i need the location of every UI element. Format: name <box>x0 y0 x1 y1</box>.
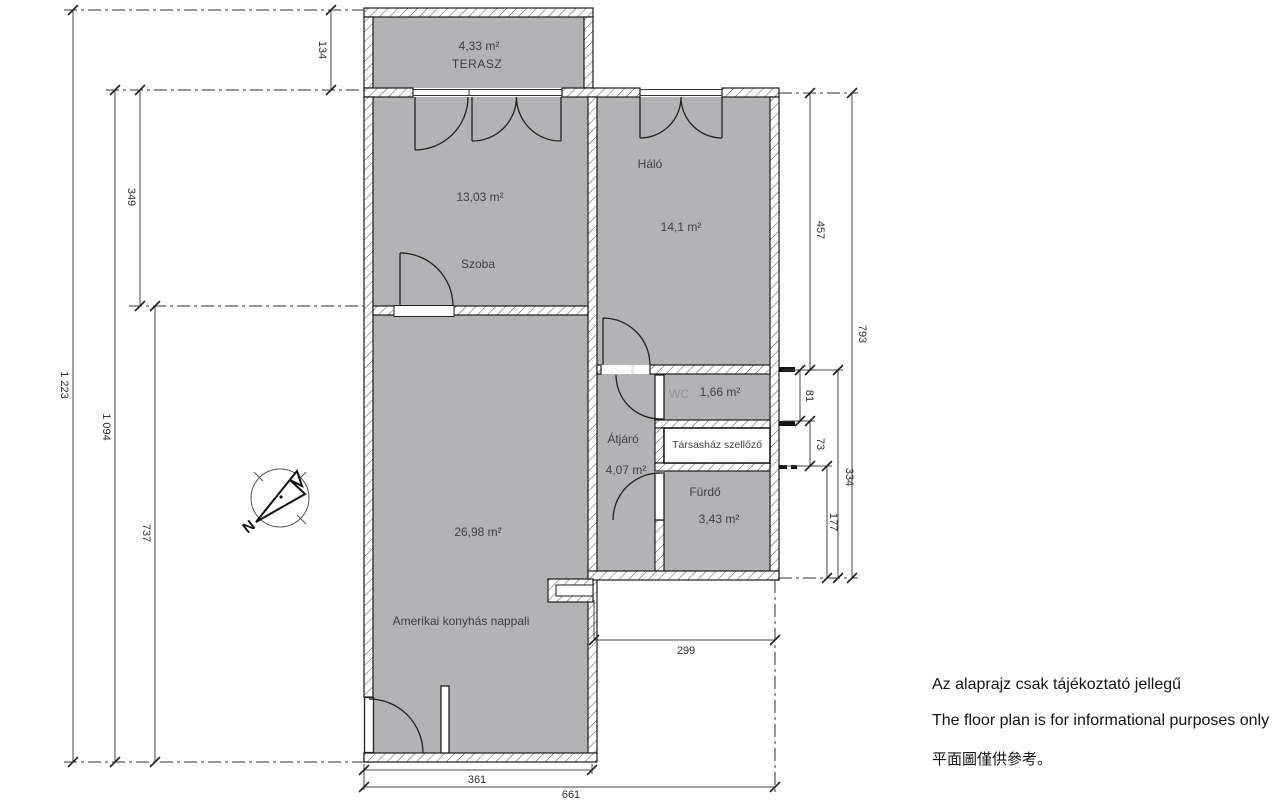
dim-right-halo: 457 <box>814 221 826 239</box>
szoba-area: 13,03 m² <box>456 190 503 204</box>
kitchen-partition-wall <box>441 686 449 753</box>
disclaimer-zh: 平面圖僅供參考。 <box>932 748 1052 769</box>
nappali-area: 26,98 m² <box>454 525 501 539</box>
wc-name: WC <box>669 387 689 401</box>
floor-plan-canvas: GDN <box>0 0 1280 800</box>
halo-name: Háló <box>638 157 663 171</box>
dim-left-apartment: 1 094 <box>100 413 112 441</box>
wc-area: 1,66 m² <box>700 385 741 399</box>
furdo-name: Fürdő <box>689 485 720 499</box>
dim-left-szoba: 349 <box>125 188 137 206</box>
szellozo-name: Társasház szellőző <box>672 439 762 451</box>
dim-right-szellozo: 73 <box>814 438 826 450</box>
dim-top-terrace: 134 <box>316 41 328 59</box>
atjaro-name: Átjáró <box>607 432 638 446</box>
dim-right-wc: 81 <box>803 390 815 402</box>
dim-right-block: 334 <box>843 468 855 486</box>
szoba-name: Szoba <box>461 257 495 271</box>
wall-end-markers <box>779 367 797 469</box>
dim-right-furdo: 177 <box>827 513 839 531</box>
chimney-flue-slot <box>556 585 593 596</box>
terasz-name: TERASZ <box>452 57 502 71</box>
dim-bottom-offset: 299 <box>677 645 695 657</box>
terasz-area: 4,33 m² <box>459 39 500 53</box>
dim-left-nappali: 737 <box>140 524 152 542</box>
dim-bottom-total: 661 <box>562 789 580 800</box>
compass-north-arrow <box>251 469 309 527</box>
disclaimer-en: The floor plan is for informational purp… <box>932 712 1269 730</box>
dim-bottom-nappali: 361 <box>468 774 486 786</box>
halo-area: 14,1 m² <box>661 220 702 234</box>
atjaro-area: 4,07 m² <box>606 463 647 477</box>
dim-left-total: 1 223 <box>58 371 70 399</box>
dim-right-total: 793 <box>856 325 868 343</box>
disclaimer-hu: Az alaprajz csak tájékoztató jellegű <box>932 676 1181 694</box>
furdo-area: 3,43 m² <box>699 512 740 526</box>
nappali-name: Amerikai konyhás nappali <box>393 614 530 628</box>
door-sill <box>394 306 454 317</box>
